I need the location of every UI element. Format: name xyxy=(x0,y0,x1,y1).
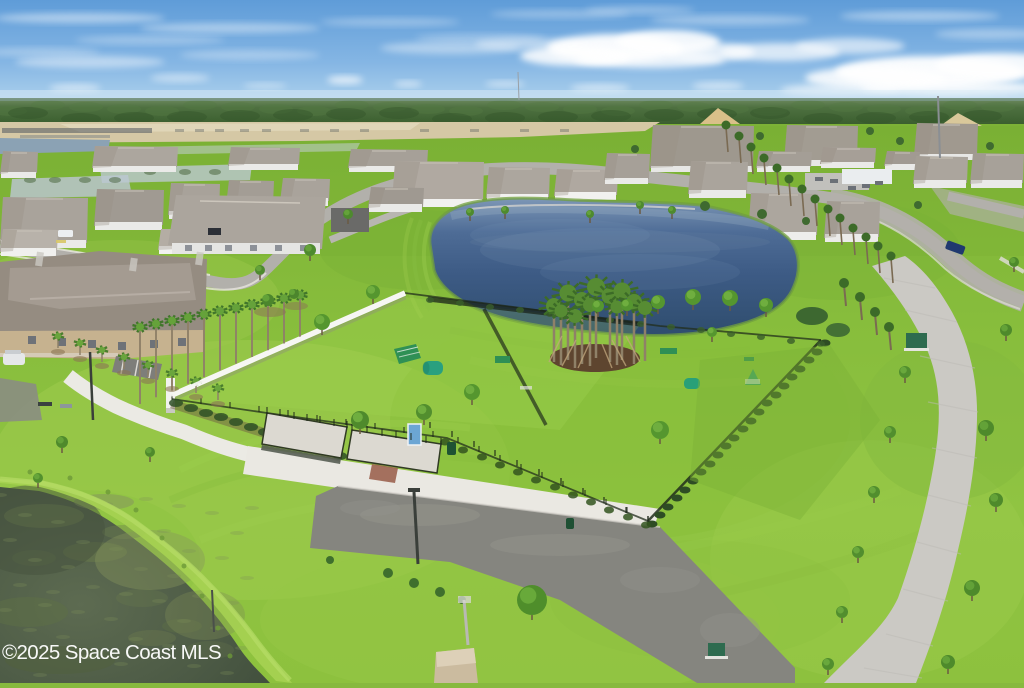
svg-text:©2025 Space Coast MLS: ©2025 Space Coast MLS xyxy=(2,641,221,664)
